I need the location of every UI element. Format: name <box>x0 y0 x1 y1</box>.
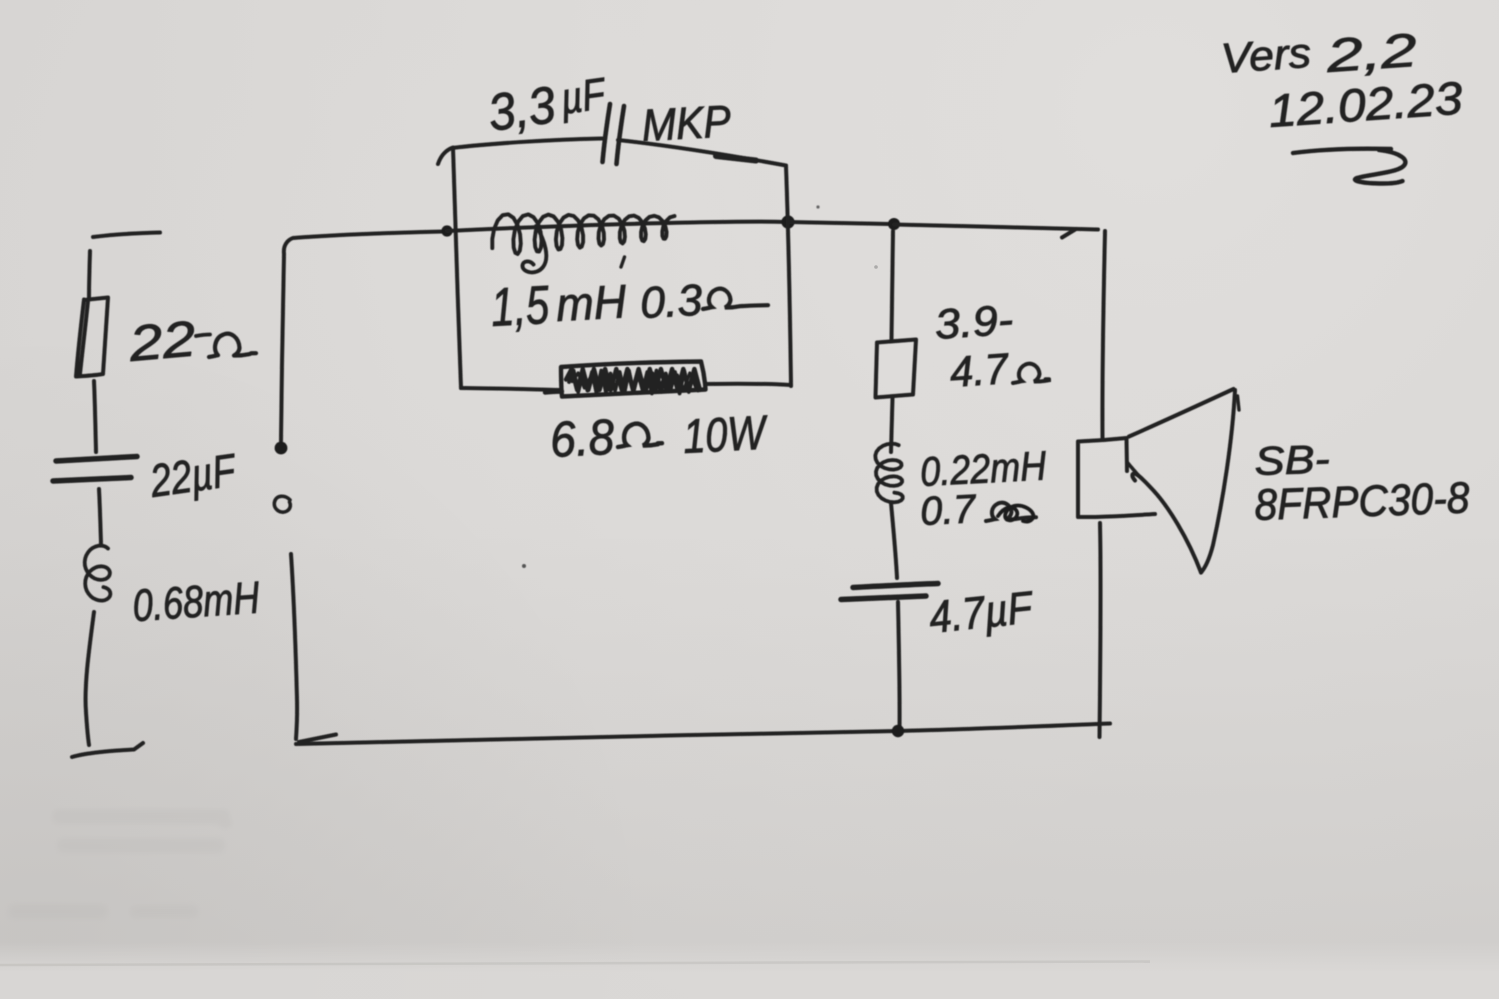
svg-text:4.7: 4.7 <box>948 345 1011 397</box>
svg-text:0.68mH: 0.68mH <box>131 571 262 631</box>
svg-text:0.3: 0.3 <box>639 276 704 328</box>
svg-text:2,2: 2,2 <box>1324 23 1419 82</box>
svg-text:1,5: 1,5 <box>489 275 551 338</box>
svg-text:3.9-: 3.9- <box>933 296 1014 348</box>
svg-text:10W: 10W <box>682 407 771 464</box>
svg-text:0.22mH: 0.22mH <box>919 442 1048 495</box>
svg-text:3,3: 3,3 <box>485 76 559 143</box>
svg-text:mH: mH <box>555 274 628 331</box>
svg-text:MKP: MKP <box>640 95 732 151</box>
svg-text:6.8: 6.8 <box>549 409 616 468</box>
svg-text:0.7: 0.7 <box>919 487 978 534</box>
svg-text:Vers: Vers <box>1219 29 1312 82</box>
svg-text:22: 22 <box>126 310 198 372</box>
svg-text:µF: µF <box>557 69 610 124</box>
svg-text:SB-: SB- <box>1254 437 1330 484</box>
svg-text:8FRPC30-8: 8FRPC30-8 <box>1254 474 1471 530</box>
